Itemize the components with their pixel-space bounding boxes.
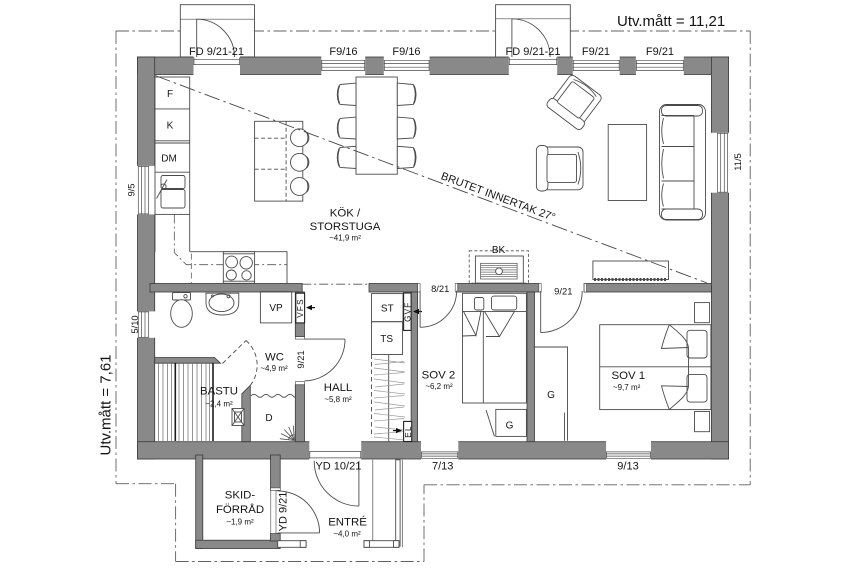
svg-text:Utv.mått = 11,21: Utv.mått = 11,21 — [617, 13, 725, 30]
svg-text:9/5: 9/5 — [126, 183, 137, 196]
svg-text:~9,7 m²: ~9,7 m² — [613, 383, 641, 392]
svg-text:Utv.mått = 7,61: Utv.mått = 7,61 — [98, 354, 115, 455]
svg-text:D: D — [265, 413, 272, 424]
svg-text:~41,9 m²: ~41,9 m² — [329, 234, 361, 243]
svg-text:F9/21: F9/21 — [582, 46, 610, 58]
svg-text:SOV 2: SOV 2 — [422, 370, 456, 382]
svg-text:WC: WC — [265, 352, 284, 364]
svg-text:SOV 1: SOV 1 — [612, 370, 646, 382]
svg-text:DM: DM — [161, 154, 177, 165]
svg-text:FD 9/21-21: FD 9/21-21 — [189, 46, 244, 58]
svg-text:EL: EL — [404, 425, 413, 437]
svg-text:F9/16: F9/16 — [329, 46, 357, 58]
svg-text:F: F — [167, 89, 173, 100]
svg-text:~6,2 m²: ~6,2 m² — [425, 382, 453, 391]
svg-text:9/21: 9/21 — [295, 350, 306, 368]
svg-text:BK: BK — [492, 245, 506, 256]
svg-text:VP: VP — [269, 303, 283, 314]
svg-text:9/13: 9/13 — [617, 461, 638, 473]
svg-text:G: G — [506, 421, 514, 432]
svg-text:F9/16: F9/16 — [392, 46, 420, 58]
svg-text:FÖRRÅD: FÖRRÅD — [216, 503, 264, 516]
svg-text:YD 9/21: YD 9/21 — [278, 492, 290, 532]
svg-text:7/13: 7/13 — [432, 461, 453, 473]
svg-text:ST: ST — [381, 304, 394, 315]
svg-text:~4,0 m²: ~4,0 m² — [333, 530, 361, 539]
svg-text:KÖK /: KÖK / — [330, 208, 361, 220]
svg-text:SKID-: SKID- — [225, 490, 256, 502]
svg-text:FD 9/21-21: FD 9/21-21 — [505, 46, 560, 58]
svg-text:GVF: GVF — [403, 301, 412, 321]
svg-text:TS: TS — [380, 334, 393, 345]
svg-text:~2,4 m²: ~2,4 m² — [205, 400, 233, 409]
svg-text:9/21: 9/21 — [554, 286, 572, 297]
svg-text:~1,9 m²: ~1,9 m² — [226, 518, 254, 527]
svg-text:BASTU: BASTU — [200, 386, 238, 398]
svg-text:5/10: 5/10 — [129, 315, 140, 333]
svg-text:HALL: HALL — [324, 382, 353, 394]
svg-text:G: G — [547, 390, 555, 401]
svg-text:STORSTUGA: STORSTUGA — [310, 221, 381, 233]
svg-text:8/21: 8/21 — [431, 283, 449, 294]
svg-text:K: K — [167, 121, 174, 132]
svg-text:~4,9 m²: ~4,9 m² — [260, 364, 288, 373]
svg-text:F9/21: F9/21 — [646, 46, 674, 58]
svg-text:ENTRÉ: ENTRÉ — [328, 516, 367, 529]
svg-text:YD 10/21: YD 10/21 — [315, 461, 361, 473]
svg-text:VFS: VFS — [296, 298, 305, 318]
svg-text:~5,8 m²: ~5,8 m² — [324, 395, 352, 404]
svg-text:11/5: 11/5 — [732, 153, 743, 171]
